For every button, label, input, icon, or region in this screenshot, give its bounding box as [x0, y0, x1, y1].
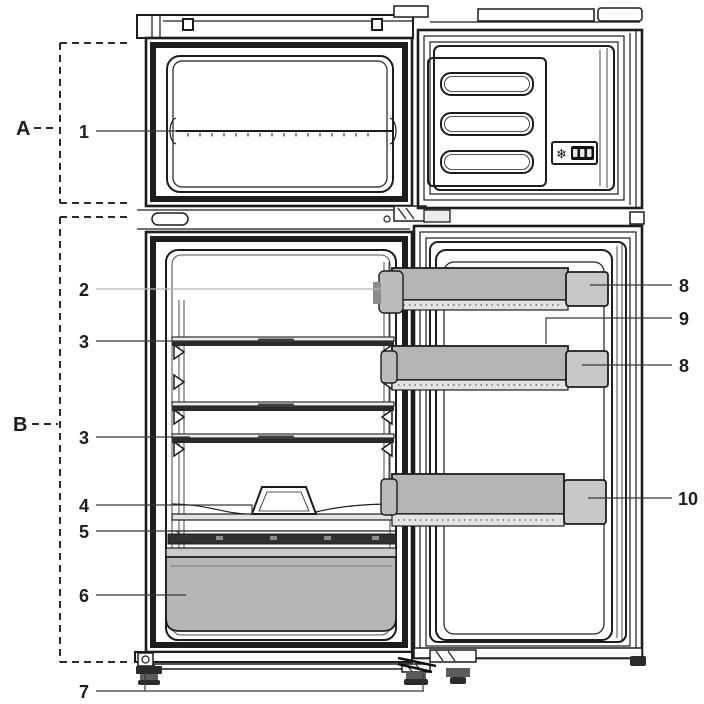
door-bin-middle: [381, 346, 608, 390]
freezer-door: ❄: [418, 8, 642, 208]
door-bin-upper: [373, 268, 608, 313]
section-b-label: B: [13, 414, 27, 436]
refrigerator-parts-diagram: ❄: [0, 0, 704, 704]
freezer-shelf-ticks: [188, 133, 368, 137]
thermostat-housing: [379, 271, 403, 313]
glass-shelf-1: [172, 337, 394, 346]
callout-10-label: 10: [678, 489, 698, 509]
door-bin-middle-tab: [381, 351, 397, 383]
door-bin-upper-cap: [566, 272, 608, 306]
door-bin-lower-cap: [564, 480, 606, 524]
snowflake-icon: ❄: [556, 148, 567, 163]
callout-9-line: [546, 318, 672, 344]
door-bin-lower-tab: [381, 479, 397, 515]
freezer-door-outer: [418, 30, 642, 208]
top-hinge-cover: [598, 8, 642, 21]
band-screw: [384, 216, 390, 222]
callout-4-label: 4: [79, 496, 89, 516]
door-bin-lower: [381, 474, 606, 526]
callout-6-label: 6: [79, 586, 89, 606]
freezer-liner: [167, 56, 393, 192]
callout-3a-label: 3: [79, 332, 89, 352]
bottom-rail: [135, 652, 412, 662]
fridge-compartment: [146, 232, 412, 652]
callout-7-line: [96, 670, 424, 691]
crisper-drawer: [166, 548, 396, 631]
freezer-door-gasket: [434, 46, 614, 190]
top-vent-hole-left: [183, 19, 193, 30]
glass-shelf-2: [172, 402, 394, 411]
shelf-marking: [258, 339, 294, 343]
freezer-door-frame2: [430, 42, 618, 194]
callout-3b-label: 3: [79, 428, 89, 448]
freezer-frame-band: [153, 45, 405, 199]
fridge-door-bottom: [398, 648, 646, 684]
callout-5-label: 5: [79, 522, 89, 542]
crisper-cover: [172, 487, 394, 520]
freezer-frame-outer: [146, 38, 412, 206]
shelf-marking: [258, 404, 294, 408]
band-slot: [152, 213, 188, 225]
cabinet-bottom: [135, 652, 430, 685]
top-hinge-tab: [394, 6, 428, 17]
door-bin-middle-cap: [566, 351, 608, 387]
front-kick-rail: [154, 664, 412, 669]
callout-7-label: 7: [79, 682, 89, 702]
crisper-trim: [168, 531, 396, 544]
freezer-door-panel: [428, 58, 546, 186]
glass-shelf-3: [172, 434, 394, 443]
callout-9-label: 9: [679, 309, 689, 329]
bottle-holder: [252, 487, 316, 514]
freezer-door-frame1: [424, 36, 624, 200]
control-display: ❄: [552, 142, 597, 164]
middle-hinge-arm: [424, 210, 450, 222]
top-vent-hole-right: [372, 19, 382, 30]
callout-8a-label: 8: [679, 276, 689, 296]
freezer-liner-inner: [173, 61, 387, 187]
thermostat-tab: [373, 282, 381, 304]
callout-2-label: 2: [79, 280, 89, 300]
freezer-compartment: [146, 38, 412, 206]
section-a-label: A: [16, 118, 30, 140]
middle-hinge-right-cap: [630, 212, 644, 224]
left-front-foot: [136, 666, 162, 685]
callout-8b-label: 8: [679, 356, 689, 376]
door-top-bar: [478, 9, 594, 21]
bottom-corner-plate: [138, 653, 153, 666]
diagram-canvas: ❄: [0, 0, 704, 704]
door-bottom-right-foot: [630, 656, 646, 666]
callout-1-label: 1: [79, 122, 89, 142]
fridge-door: [373, 226, 646, 684]
shelf-marking: [258, 436, 294, 440]
